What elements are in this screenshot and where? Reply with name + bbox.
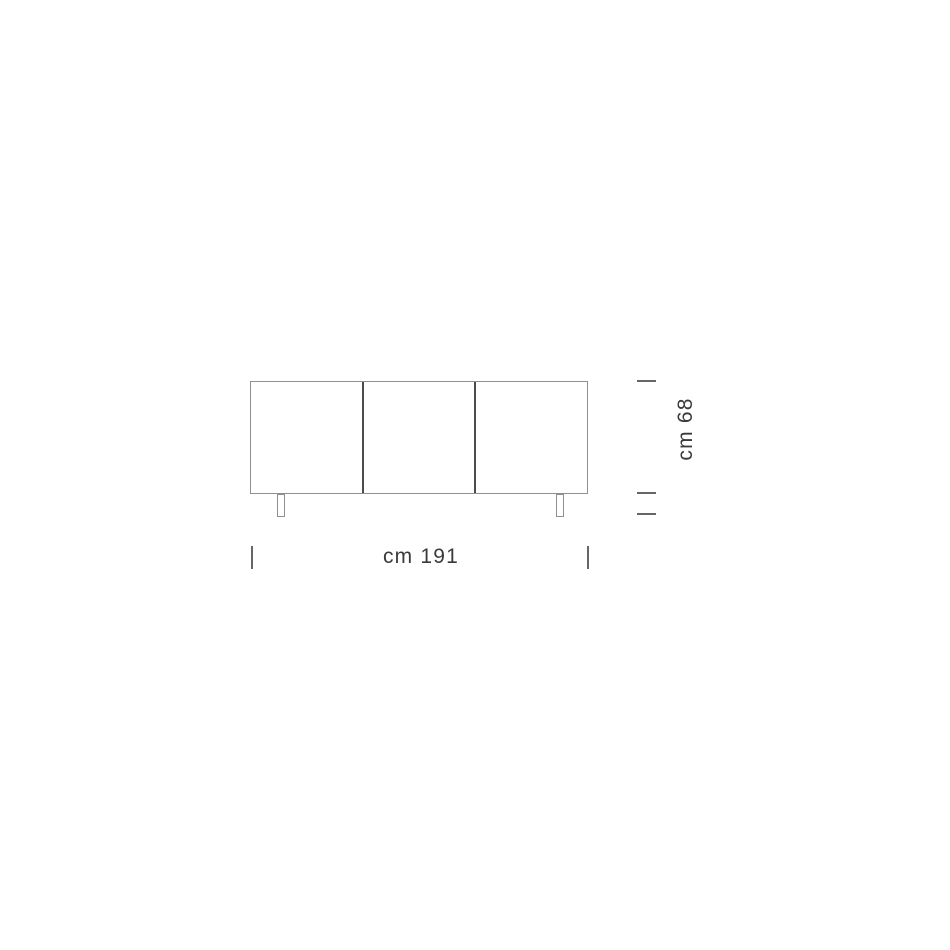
cabinet-outline — [250, 381, 588, 494]
door-divider-right — [474, 382, 476, 493]
door-divider-left — [362, 382, 364, 493]
height-tick-top — [637, 380, 656, 382]
height-tick-bottom — [637, 513, 656, 515]
cabinet-leg-right — [556, 494, 564, 517]
height-tick-middle — [637, 492, 656, 494]
width-tick-left — [251, 546, 253, 569]
height-dimension-label: cm 68 — [671, 369, 701, 489]
width-dimension-label: cm 191 — [321, 543, 521, 571]
dimension-diagram-canvas: cm 68 cm 191 — [0, 0, 950, 950]
cabinet-leg-left — [277, 494, 285, 517]
width-tick-right — [587, 546, 589, 569]
